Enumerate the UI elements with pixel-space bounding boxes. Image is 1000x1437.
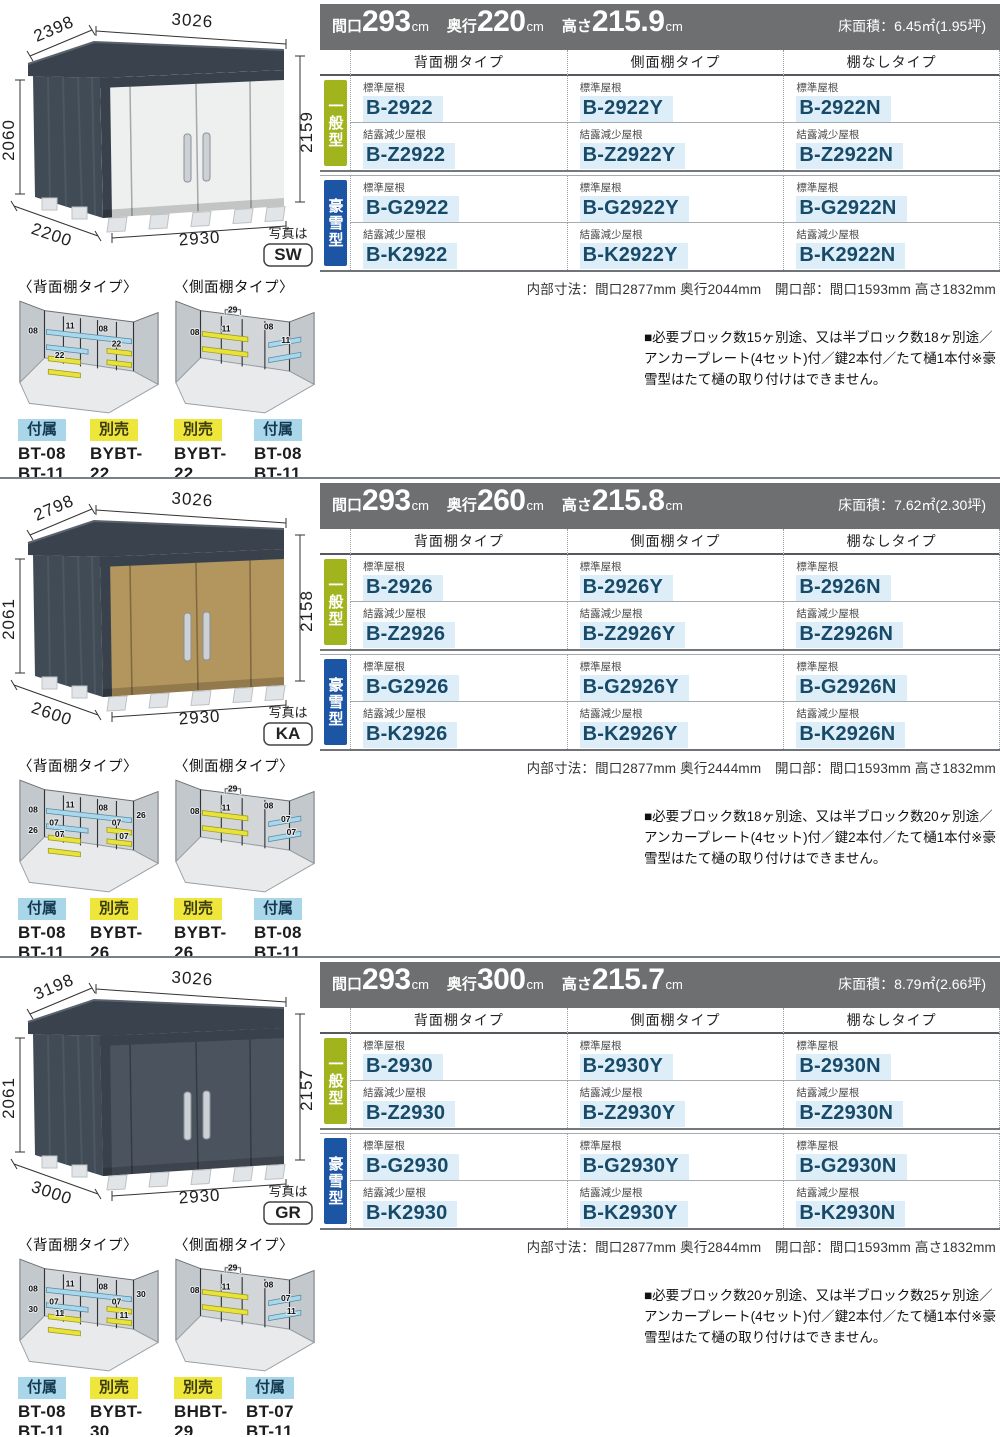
model-number: B-K2922N (796, 243, 905, 269)
model-cell: 結露減少屋根B-K2926Y (567, 702, 784, 749)
roof-type-label: 結露減少屋根 (796, 227, 991, 242)
svg-text:07: 07 (281, 1293, 291, 1303)
spec-width: 間口293cm (332, 484, 429, 518)
svg-text:07: 07 (119, 831, 129, 841)
shelf-diagrams: 〈背面棚タイプ〉 (0, 1234, 320, 1435)
model-number: B-Z2926Y (580, 622, 686, 648)
svg-text:11: 11 (66, 1279, 75, 1289)
svg-text:11: 11 (66, 321, 75, 331)
model-number: B-G2926N (796, 675, 906, 701)
illustration-column: 2398 3026 2060 2159 2200 2930 写真は SW 〈背面… (0, 0, 320, 477)
dim-top-depth: 3198 (31, 970, 77, 1004)
part-numbers: BHBT-29 (174, 1402, 236, 1435)
svg-text:11: 11 (287, 1306, 296, 1316)
roof-type-label: 結露減少屋根 (363, 227, 559, 242)
svg-text:22: 22 (55, 350, 65, 360)
dim-left-height: 2061 (0, 1077, 18, 1119)
photo-color-code: KA (276, 724, 301, 743)
model-cell: 標準屋根B-G2922 (350, 176, 567, 223)
col-header-side-shelf: 側面棚タイプ (567, 529, 784, 555)
col-header-side-shelf: 側面棚タイプ (567, 50, 784, 76)
svg-text:11: 11 (281, 335, 290, 345)
spec-height: 高さ215.9cm (562, 5, 683, 39)
dim-top-depth: 2398 (31, 12, 77, 46)
photo-note: 写真は (268, 705, 307, 720)
svg-text:07: 07 (112, 1297, 122, 1307)
model-number: B-2922 (363, 96, 443, 122)
roof-type-label: 標準屋根 (363, 1138, 559, 1153)
col-header-back-shelf: 背面棚タイプ (350, 50, 567, 76)
col-header-no-shelf: 棚なしタイプ (783, 529, 1000, 555)
inner-dimensions: 内部寸法：間口2877mm 奥行2844mm 開口部：間口1593mm 高さ18… (320, 1236, 1000, 1256)
dim-top-width: 3026 (171, 10, 214, 32)
roof-type-label: 標準屋根 (580, 1038, 776, 1053)
roof-type-label: 結露減少屋根 (796, 606, 991, 621)
spec-header-bar: 間口293cm 奥行260cm 高さ215.8cm 床面積：7.62㎡(2.30… (320, 483, 1000, 529)
model-number: B-2926N (796, 575, 890, 601)
parts-group: 付属 BT-08 BT-11 (254, 419, 316, 477)
model-number: B-Z2922N (796, 143, 903, 169)
table-corner (320, 529, 350, 555)
part-numbers: BYBT-22 (90, 444, 160, 477)
parts-chips: 付属 BT-08 BT-11 別売 BYBT-22 (18, 419, 160, 477)
spec-header-bar: 間口293cm 奥行220cm 高さ215.9cm 床面積：6.45㎡(1.95… (320, 4, 1000, 50)
diagram-title: 〈背面棚タイプ〉 (18, 1234, 160, 1255)
spec-width: 間口293cm (332, 963, 429, 997)
model-cell: 結露減少屋根B-Z2926 (350, 602, 567, 649)
parts-group: 別売 BYBT-26 (90, 898, 160, 956)
parts-group: 別売 BHBT-29 (174, 1377, 236, 1435)
availability-chip: 付属 (18, 419, 66, 441)
svg-text:08: 08 (190, 806, 200, 816)
roof-type-label: 結露減少屋根 (580, 1085, 776, 1100)
model-cell: 標準屋根B-G2930N (783, 1134, 1000, 1181)
roof-type-label: 標準屋根 (580, 1138, 776, 1153)
svg-text:08: 08 (98, 1281, 108, 1291)
parts-group: 付属 BT-08 BT-11 (18, 1377, 80, 1435)
model-cell: 結露減少屋根B-Z2930N (783, 1081, 1000, 1128)
svg-text:07: 07 (49, 818, 59, 828)
model-cell: 標準屋根B-G2930Y (567, 1134, 784, 1181)
inner-dimensions: 内部寸法：間口2877mm 奥行2444mm 開口部：間口1593mm 高さ18… (320, 757, 1000, 777)
spec-note: ■必要ブロック数20ヶ別途、又は半ブロック数25ヶ別途／アンカープレート(4セッ… (644, 1286, 1000, 1349)
shed-illustration: 2398 3026 2060 2159 2200 2930 写真は SW (0, 0, 320, 268)
availability-chip: 別売 (90, 419, 138, 441)
table-corner (320, 1008, 350, 1034)
spec-column: 間口293cm 奥行300cm 高さ215.7cm 床面積：8.79㎡(2.66… (320, 962, 1000, 1349)
roof-type-label: 結露減少屋根 (363, 127, 559, 142)
back-shelf-diagram: 〈背面棚タイプ〉 (18, 1234, 160, 1435)
model-cell: 結露減少屋根B-Z2922 (350, 123, 567, 170)
photo-note: 写真は (268, 226, 307, 241)
svg-text:30: 30 (28, 1304, 38, 1314)
product-section: 2398 3026 2060 2159 2200 2930 写真は SW 〈背面… (0, 0, 1000, 477)
spec-note: ■必要ブロック数18ヶ別途、又は半ブロック数20ヶ別途／アンカープレート(4セッ… (644, 807, 1000, 870)
product-section: 2798 3026 2061 2158 2600 2930 写真は KA 〈背面… (0, 477, 1000, 956)
side-shelf-room-drawing: ┌29┐ 08 11 08 11 (174, 299, 316, 415)
part-numbers: BYBT-22 (174, 444, 244, 477)
availability-chip: 別売 (174, 419, 222, 441)
photo-badge: 写真は SW (264, 226, 312, 266)
model-number: B-G2930Y (580, 1154, 689, 1180)
roof-type-label: 結露減少屋根 (580, 127, 776, 142)
type-label-heavy-snow: 豪雪型 (324, 659, 347, 745)
dim-bottom-depth: 2200 (29, 219, 75, 251)
model-number: B-2926 (363, 575, 443, 601)
roof-type-label: 結露減少屋根 (580, 1185, 776, 1200)
photo-badge: 写真は KA (264, 705, 312, 745)
part-numbers: BYBT-26 (90, 923, 160, 956)
svg-text:07: 07 (112, 818, 122, 828)
shed-catalog-page: 2398 3026 2060 2159 2200 2930 写真は SW 〈背面… (0, 0, 1000, 1435)
roof-type-label: 結露減少屋根 (796, 1085, 991, 1100)
svg-text:11: 11 (120, 1310, 129, 1320)
col-header-side-shelf: 側面棚タイプ (567, 1008, 784, 1034)
shed-front-doors (100, 70, 284, 218)
roof-type-label: 標準屋根 (796, 180, 991, 195)
floor-area: 床面積：8.79㎡(2.66坪) (838, 974, 986, 994)
roof-type-label: 標準屋根 (580, 659, 776, 674)
roof-type-label: 標準屋根 (363, 659, 559, 674)
shelf-diagrams: 〈背面棚タイプ〉 (0, 276, 320, 477)
dim-right-height: 2159 (297, 111, 316, 153)
model-number: B-Z2922Y (580, 143, 686, 169)
spec-height: 高さ215.8cm (562, 484, 683, 518)
svg-text:11: 11 (55, 1308, 64, 1318)
svg-text:┌29┐: ┌29┐ (222, 1263, 244, 1274)
svg-text:07: 07 (55, 829, 65, 839)
model-number: B-2926Y (580, 575, 673, 601)
shed-front-doors (100, 1028, 284, 1176)
parts-group: 別売 BYBT-22 (174, 419, 244, 477)
parts-chips: 別売 BHBT-29 付属 BT-07 BT-11 BT-08 (174, 1377, 316, 1435)
model-cell: 結露減少屋根B-Z2930 (350, 1081, 567, 1128)
roof-type-label: 標準屋根 (363, 180, 559, 195)
svg-text:08: 08 (28, 325, 38, 335)
model-number: B-Z2926 (363, 622, 455, 648)
spec-depth: 奥行300cm (447, 963, 544, 997)
dim-right-height: 2158 (297, 590, 316, 632)
model-number: B-K2930N (796, 1201, 905, 1227)
floor-area: 床面積：7.62㎡(2.30坪) (838, 495, 986, 515)
shed-front-doors (100, 549, 284, 697)
back-shelf-room-drawing: 08 11 08 22 22 (18, 299, 160, 415)
availability-chip: 付属 (246, 1377, 294, 1399)
model-number: B-K2922 (363, 243, 457, 269)
spec-height: 高さ215.7cm (562, 963, 683, 997)
parts-chips: 付属 BT-08 BT-11 別売 BYBT-30 (18, 1377, 160, 1435)
back-shelf-diagram: 〈背面棚タイプ〉 (18, 755, 160, 956)
svg-text:07: 07 (49, 1297, 59, 1307)
availability-chip: 付属 (18, 1377, 66, 1399)
svg-text:08: 08 (264, 1280, 274, 1290)
spec-depth: 奥行260cm (447, 484, 544, 518)
roof-type-label: 標準屋根 (580, 180, 776, 195)
spec-column: 間口293cm 奥行220cm 高さ215.9cm 床面積：6.45㎡(1.95… (320, 4, 1000, 391)
parts-group: 付属 BT-08 BT-11 (18, 898, 80, 956)
svg-text:30: 30 (136, 1289, 146, 1299)
shed-left-wall (33, 76, 103, 218)
model-cell: 結露減少屋根B-Z2922N (783, 123, 1000, 170)
parts-chips: 付属 BT-08 BT-11 別売 BYBT-26 (18, 898, 160, 956)
svg-text:08: 08 (264, 801, 274, 811)
parts-group: 付属 BT-08 BT-11 (254, 898, 316, 956)
model-number: B-G2922N (796, 196, 906, 222)
availability-chip: 付属 (18, 898, 66, 920)
roof-type-label: 結露減少屋根 (796, 706, 991, 721)
model-number: B-G2922 (363, 196, 459, 222)
svg-text:07: 07 (281, 814, 291, 824)
svg-text:┌29┐: ┌29┐ (222, 305, 244, 316)
svg-text:11: 11 (222, 802, 231, 812)
model-number: B-G2922Y (580, 196, 689, 222)
model-cell: 結露減少屋根B-Z2922Y (567, 123, 784, 170)
availability-chip: 別売 (90, 898, 138, 920)
roof-type-label: 結露減少屋根 (580, 227, 776, 242)
shed-illustration: 3198 3026 2061 2157 3000 2930 写真は GR (0, 958, 320, 1226)
shed-left-wall (33, 555, 103, 697)
back-shelf-room-drawing: 08 11 08 07 26 07 07 26 07 (18, 778, 160, 894)
roof-type-label: 標準屋根 (796, 1138, 991, 1153)
svg-text:07: 07 (287, 827, 297, 837)
dim-top-width: 3026 (171, 489, 214, 511)
part-numbers: BT-08 BT-11 (254, 444, 316, 477)
type-label-heavy-snow: 豪雪型 (324, 1138, 347, 1224)
roof-type-label: 標準屋根 (580, 80, 776, 95)
svg-text:08: 08 (98, 802, 108, 812)
roof-type-label: 結露減少屋根 (363, 1185, 559, 1200)
part-numbers: BT-07 BT-11 BT-08 (246, 1402, 316, 1435)
photo-color-code: GR (275, 1203, 301, 1222)
roof-type-label: 標準屋根 (363, 1038, 559, 1053)
model-number: B-G2926 (363, 675, 459, 701)
col-header-back-shelf: 背面棚タイプ (350, 529, 567, 555)
model-cell: 結露減少屋根B-Z2926N (783, 602, 1000, 649)
part-numbers: BYBT-30 (90, 1402, 160, 1435)
model-number: B-2922Y (580, 96, 673, 122)
floor-area: 床面積：6.45㎡(1.95坪) (838, 16, 986, 36)
model-cell: 標準屋根B-2926Y (567, 555, 784, 602)
dim-left-height: 2060 (0, 119, 18, 161)
svg-text:┌29┐: ┌29┐ (222, 784, 244, 795)
illustration-column: 2798 3026 2061 2158 2600 2930 写真は KA 〈背面… (0, 479, 320, 956)
diagram-title: 〈側面棚タイプ〉 (174, 755, 316, 776)
svg-text:26: 26 (28, 825, 38, 835)
photo-color-code: SW (274, 245, 302, 264)
roof-type-label: 標準屋根 (796, 1038, 991, 1053)
table-corner (320, 50, 350, 76)
model-number: B-K2930 (363, 1201, 457, 1227)
dim-left-height: 2061 (0, 598, 18, 640)
model-number: B-K2922Y (580, 243, 688, 269)
model-number: B-K2930Y (580, 1201, 688, 1227)
model-number: B-K2926N (796, 722, 905, 748)
part-numbers: BT-08 BT-11 (18, 1402, 80, 1435)
model-number: B-Z2930N (796, 1101, 903, 1127)
photo-note: 写真は (268, 1184, 307, 1199)
availability-chip: 付属 (254, 898, 302, 920)
models-table: 背面棚タイプ 側面棚タイプ 棚なしタイプ 一般型 豪雪型 標準屋根B-2922 … (320, 50, 1000, 272)
shed-illustration: 2798 3026 2061 2158 2600 2930 写真は KA (0, 479, 320, 747)
dim-bottom-width: 2930 (178, 707, 221, 729)
model-cell: 結露減少屋根B-K2926 (350, 702, 567, 749)
side-shelf-diagram: 〈側面棚タイプ〉 (174, 755, 316, 956)
model-number: B-2930N (796, 1054, 890, 1080)
spec-width: 間口293cm (332, 5, 429, 39)
shed-left-wall (33, 1034, 103, 1176)
model-cell: 標準屋根B-2926N (783, 555, 1000, 602)
model-cell: 標準屋根B-2922 (350, 76, 567, 123)
model-cell: 標準屋根B-2926 (350, 555, 567, 602)
photo-badge: 写真は GR (264, 1184, 312, 1224)
svg-text:08: 08 (98, 323, 108, 333)
model-number: B-Z2926N (796, 622, 903, 648)
dim-bottom-width: 2930 (178, 228, 221, 250)
roof-type-label: 結露減少屋根 (796, 1185, 991, 1200)
product-section: 3198 3026 2061 2157 3000 2930 写真は GR 〈背面… (0, 956, 1000, 1435)
models-table: 背面棚タイプ 側面棚タイプ 棚なしタイプ 一般型 豪雪型 標準屋根B-2926 … (320, 529, 1000, 751)
side-shelf-diagram: 〈側面棚タイプ〉 (174, 1234, 316, 1435)
diagram-title: 〈背面棚タイプ〉 (18, 276, 160, 297)
roof-type-label: 結露減少屋根 (363, 1085, 559, 1100)
svg-text:11: 11 (222, 1281, 231, 1291)
model-cell: 結露減少屋根B-K2926N (783, 702, 1000, 749)
diagram-title: 〈側面棚タイプ〉 (174, 1234, 316, 1255)
availability-chip: 付属 (254, 419, 302, 441)
diagram-title: 〈背面棚タイプ〉 (18, 755, 160, 776)
roof-type-label: 結露減少屋根 (363, 706, 559, 721)
roof-type-label: 標準屋根 (580, 559, 776, 574)
dim-top-depth: 2798 (31, 491, 77, 525)
model-number: B-Z2930Y (580, 1101, 686, 1127)
model-number: B-K2926Y (580, 722, 688, 748)
parts-chips: 別売 BYBT-26 付属 BT-08 BT-11 (174, 898, 316, 956)
roof-type-label: 結露減少屋根 (796, 127, 991, 142)
back-shelf-diagram: 〈背面棚タイプ〉 (18, 276, 160, 477)
svg-text:08: 08 (28, 804, 38, 814)
svg-text:08: 08 (264, 322, 274, 332)
roof-type-label: 標準屋根 (363, 559, 559, 574)
svg-text:11: 11 (222, 323, 231, 333)
parts-group: 付属 BT-07 BT-11 BT-08 (246, 1377, 316, 1435)
model-cell: 結露減少屋根B-Z2926Y (567, 602, 784, 649)
roof-type-label: 標準屋根 (363, 80, 559, 95)
model-cell: 標準屋根B-G2922N (783, 176, 1000, 223)
type-label-heavy-snow: 豪雪型 (324, 180, 347, 266)
col-header-no-shelf: 棚なしタイプ (783, 50, 1000, 76)
part-numbers: BT-08 BT-11 (254, 923, 316, 956)
parts-group: 付属 BT-08 BT-11 (18, 419, 80, 477)
svg-text:08: 08 (190, 327, 200, 337)
parts-chips: 別売 BYBT-22 付属 BT-08 BT-11 (174, 419, 316, 477)
availability-chip: 別売 (174, 1377, 222, 1399)
part-numbers: BT-08 BT-11 (18, 923, 80, 956)
model-cell: 結露減少屋根B-K2930N (783, 1181, 1000, 1228)
model-cell: 標準屋根B-G2922Y (567, 176, 784, 223)
svg-text:11: 11 (66, 800, 75, 810)
parts-group: 別売 BYBT-30 (90, 1377, 160, 1435)
model-number: B-Z2922 (363, 143, 455, 169)
availability-chip: 別売 (174, 898, 222, 920)
roof-type-label: 標準屋根 (796, 659, 991, 674)
model-cell: 標準屋根B-G2926Y (567, 655, 784, 702)
side-shelf-diagram: 〈側面棚タイプ〉 (174, 276, 316, 477)
dim-bottom-depth: 2600 (29, 698, 75, 730)
model-cell: 結露減少屋根B-K2922N (783, 223, 1000, 270)
part-numbers: BT-08 BT-11 (18, 444, 80, 477)
spec-depth: 奥行220cm (447, 5, 544, 39)
parts-group: 別売 BYBT-26 (174, 898, 244, 956)
model-cell: 標準屋根B-2922Y (567, 76, 784, 123)
dim-top-width: 3026 (171, 968, 214, 990)
model-cell: 標準屋根B-2930 (350, 1034, 567, 1081)
model-number: B-2930Y (580, 1054, 673, 1080)
col-header-back-shelf: 背面棚タイプ (350, 1008, 567, 1034)
spec-note: ■必要ブロック数15ヶ別途、又は半ブロック数18ヶ別途／アンカープレート(4セッ… (644, 328, 1000, 391)
model-cell: 標準屋根B-2930N (783, 1034, 1000, 1081)
roof-type-label: 標準屋根 (796, 80, 991, 95)
inner-dimensions: 内部寸法：間口2877mm 奥行2044mm 開口部：間口1593mm 高さ18… (320, 278, 1000, 298)
svg-text:08: 08 (190, 1285, 200, 1295)
model-cell: 結露減少屋根B-Z2930Y (567, 1081, 784, 1128)
model-number: B-G2926Y (580, 675, 689, 701)
type-label-general: 一般型 (324, 80, 347, 166)
roof-type-label: 結露減少屋根 (363, 606, 559, 621)
svg-text:08: 08 (28, 1283, 38, 1293)
model-number: B-Z2930 (363, 1101, 455, 1127)
type-label-general: 一般型 (324, 559, 347, 645)
model-cell: 標準屋根B-2922N (783, 76, 1000, 123)
back-shelf-room-drawing: 08 11 08 07 30 11 07 30 11 (18, 1257, 160, 1373)
model-number: B-G2930 (363, 1154, 459, 1180)
svg-text:22: 22 (112, 339, 122, 349)
dim-bottom-depth: 3000 (29, 1177, 75, 1209)
part-numbers: BYBT-26 (174, 923, 244, 956)
roof-type-label: 結露減少屋根 (580, 706, 776, 721)
col-header-no-shelf: 棚なしタイプ (783, 1008, 1000, 1034)
diagram-title: 〈側面棚タイプ〉 (174, 276, 316, 297)
svg-text:26: 26 (136, 810, 146, 820)
illustration-column: 3198 3026 2061 2157 3000 2930 写真は GR 〈背面… (0, 958, 320, 1435)
model-number: B-K2926 (363, 722, 457, 748)
spec-header-bar: 間口293cm 奥行300cm 高さ215.7cm 床面積：8.79㎡(2.66… (320, 962, 1000, 1008)
availability-chip: 別売 (90, 1377, 138, 1399)
model-cell: 標準屋根B-G2926 (350, 655, 567, 702)
type-label-general: 一般型 (324, 1038, 347, 1124)
model-cell: 結露減少屋根B-K2922Y (567, 223, 784, 270)
models-table: 背面棚タイプ 側面棚タイプ 棚なしタイプ 一般型 豪雪型 標準屋根B-2930 … (320, 1008, 1000, 1230)
model-number: B-G2930N (796, 1154, 906, 1180)
model-cell: 標準屋根B-2930Y (567, 1034, 784, 1081)
model-cell: 結露減少屋根B-K2930 (350, 1181, 567, 1228)
roof-type-label: 結露減少屋根 (580, 606, 776, 621)
side-shelf-room-drawing: ┌29┐ 08 11 08 07 11 (174, 1257, 316, 1373)
dim-bottom-width: 2930 (178, 1186, 221, 1208)
spec-column: 間口293cm 奥行260cm 高さ215.8cm 床面積：7.62㎡(2.30… (320, 483, 1000, 870)
model-cell: 標準屋根B-G2926N (783, 655, 1000, 702)
model-cell: 結露減少屋根B-K2922 (350, 223, 567, 270)
model-number: B-2922N (796, 96, 890, 122)
model-cell: 標準屋根B-G2930 (350, 1134, 567, 1181)
roof-type-label: 標準屋根 (796, 559, 991, 574)
parts-group: 別売 BYBT-22 (90, 419, 160, 477)
side-shelf-room-drawing: ┌29┐ 08 11 08 07 07 (174, 778, 316, 894)
model-number: B-2930 (363, 1054, 443, 1080)
shelf-diagrams: 〈背面棚タイプ〉 (0, 755, 320, 956)
dim-right-height: 2157 (297, 1069, 316, 1111)
model-cell: 結露減少屋根B-K2930Y (567, 1181, 784, 1228)
